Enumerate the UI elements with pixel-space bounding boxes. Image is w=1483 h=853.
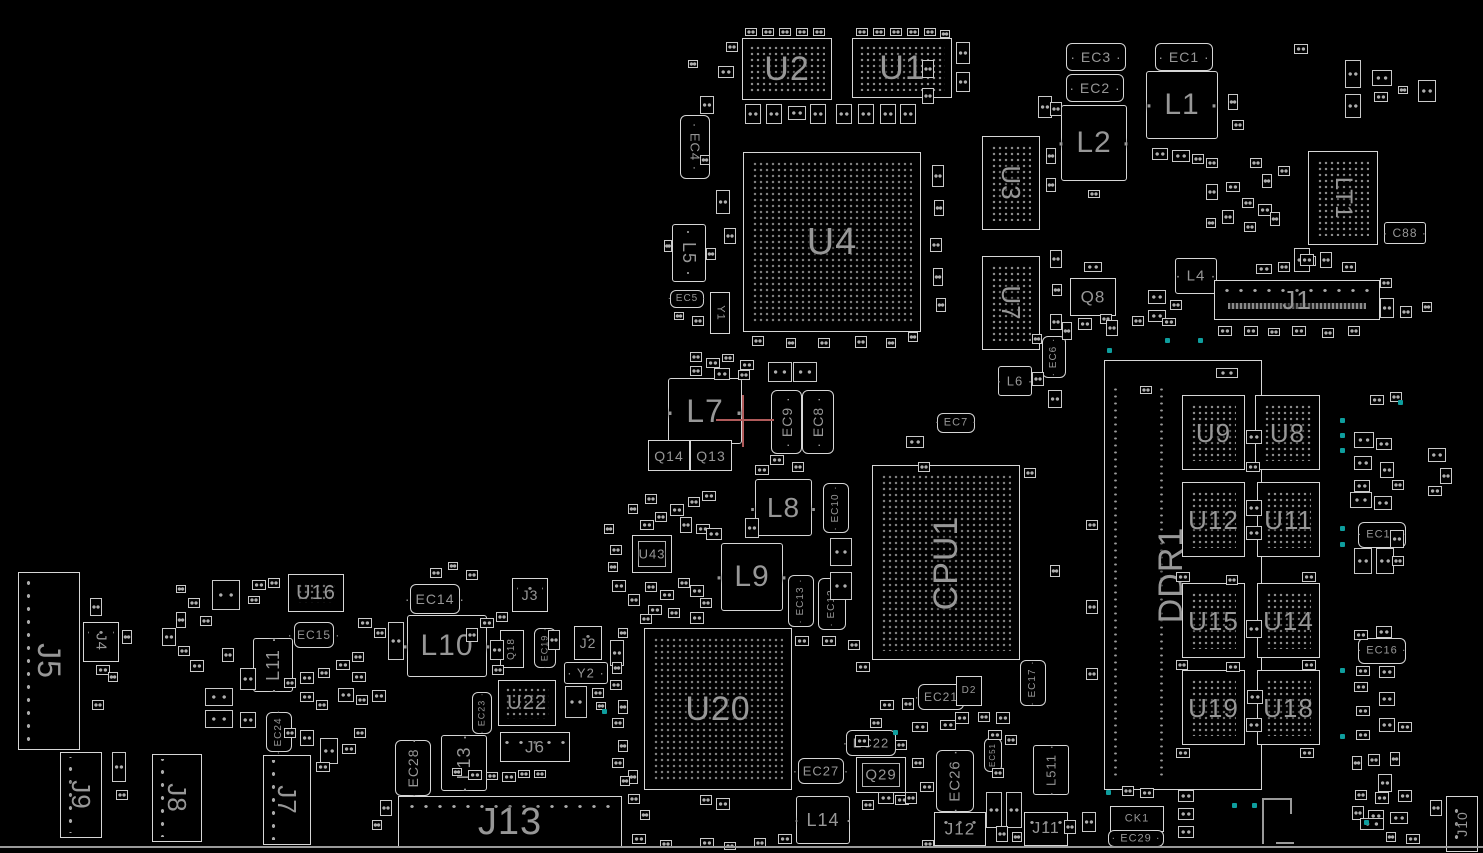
component-l13[interactable]: L13 <box>441 735 487 791</box>
component-c88[interactable]: C88 <box>1384 222 1426 244</box>
passive-part[interactable] <box>222 648 234 662</box>
passive-part[interactable] <box>380 800 392 816</box>
passive-part[interactable] <box>318 668 330 678</box>
passive-part[interactable] <box>830 538 852 566</box>
passive-part[interactable] <box>932 165 944 187</box>
passive-part[interactable] <box>284 678 296 688</box>
passive-part[interactable] <box>1376 438 1392 450</box>
passive-part[interactable] <box>924 28 936 36</box>
passive-part[interactable] <box>1390 530 1404 548</box>
passive-part[interactable] <box>768 362 792 382</box>
passive-part[interactable] <box>645 494 657 504</box>
component-j13[interactable]: J13 <box>398 796 622 848</box>
component-j10[interactable]: J10 <box>1446 796 1478 852</box>
passive-part[interactable] <box>905 792 917 804</box>
passive-part[interactable] <box>452 768 462 776</box>
passive-part[interactable] <box>1356 706 1370 716</box>
passive-part[interactable] <box>818 338 830 348</box>
passive-part[interactable] <box>486 772 498 780</box>
passive-part[interactable] <box>1052 284 1062 296</box>
component-u11[interactable]: U11 <box>1257 482 1320 557</box>
passive-part[interactable] <box>706 248 716 260</box>
passive-part[interactable] <box>1422 302 1432 312</box>
passive-part[interactable] <box>176 585 186 593</box>
passive-part[interactable] <box>1262 174 1272 188</box>
passive-part[interactable] <box>988 730 1002 740</box>
passive-part[interactable] <box>1368 754 1380 766</box>
passive-part[interactable] <box>1278 262 1290 272</box>
component-j3[interactable]: J3 <box>512 578 548 612</box>
passive-part[interactable] <box>1374 92 1388 102</box>
passive-part[interactable] <box>1106 320 1118 336</box>
passive-part[interactable] <box>755 465 769 475</box>
passive-part[interactable] <box>1294 44 1308 54</box>
passive-part[interactable] <box>1050 314 1062 330</box>
passive-part[interactable] <box>700 155 710 165</box>
passive-part[interactable] <box>1392 480 1404 490</box>
passive-part[interactable] <box>788 106 806 120</box>
passive-part[interactable] <box>592 688 604 698</box>
passive-part[interactable] <box>212 580 240 610</box>
passive-part[interactable] <box>604 524 614 534</box>
passive-part[interactable] <box>1354 456 1372 470</box>
passive-part[interactable] <box>986 792 1002 828</box>
component-ec28[interactable]: EC28 <box>395 740 431 796</box>
passive-part[interactable] <box>534 770 546 778</box>
passive-part[interactable] <box>668 608 680 618</box>
passive-part[interactable] <box>518 770 530 778</box>
component-u2[interactable]: U2 <box>742 38 832 100</box>
passive-part[interactable] <box>1024 468 1036 478</box>
component-ec16[interactable]: EC16 <box>1358 638 1406 664</box>
passive-part[interactable] <box>978 712 990 722</box>
component-lt1[interactable]: LT1 <box>1308 151 1378 245</box>
passive-part[interactable] <box>200 616 212 626</box>
passive-part[interactable] <box>745 28 757 36</box>
passive-part[interactable] <box>922 88 934 104</box>
passive-part[interactable] <box>1050 102 1062 116</box>
passive-part[interactable] <box>300 692 314 702</box>
passive-part[interactable] <box>162 628 176 646</box>
passive-part[interactable] <box>1226 662 1240 672</box>
passive-part[interactable] <box>726 42 738 52</box>
component-u20[interactable]: U20 <box>644 628 792 790</box>
component-j11[interactable]: J11 <box>1024 812 1068 846</box>
component-u19[interactable]: U19 <box>1182 670 1245 745</box>
passive-part[interactable] <box>1176 748 1190 758</box>
component-u8[interactable]: U8 <box>1255 395 1320 470</box>
passive-part[interactable] <box>766 104 782 124</box>
passive-part[interactable] <box>1050 250 1062 268</box>
passive-part[interactable] <box>856 662 870 672</box>
passive-part[interactable] <box>284 728 296 738</box>
passive-part[interactable] <box>1380 462 1394 478</box>
passive-part[interactable] <box>112 752 126 782</box>
component-l8[interactable]: L8 <box>755 479 812 536</box>
passive-part[interactable] <box>190 660 204 672</box>
passive-part[interactable] <box>342 744 356 754</box>
passive-part[interactable] <box>1244 222 1256 232</box>
passive-part[interactable] <box>1178 826 1194 838</box>
passive-part[interactable] <box>922 60 934 78</box>
passive-part[interactable] <box>1172 150 1190 162</box>
component-ec17[interactable]: EC17 <box>1020 660 1046 706</box>
passive-part[interactable] <box>813 28 825 36</box>
passive-part[interactable] <box>678 578 690 588</box>
passive-part[interactable] <box>1132 316 1144 326</box>
passive-part[interactable] <box>1356 666 1370 676</box>
passive-part[interactable] <box>1342 262 1356 272</box>
passive-part[interactable] <box>1370 395 1384 405</box>
component-ec4[interactable]: EC4 <box>680 115 710 179</box>
component-ec6[interactable]: EC6 <box>1042 336 1066 378</box>
passive-part[interactable] <box>956 42 970 64</box>
passive-part[interactable] <box>352 672 366 682</box>
passive-part[interactable] <box>1440 468 1452 484</box>
component-j5[interactable]: J5 <box>18 572 80 750</box>
passive-part[interactable] <box>745 104 761 124</box>
passive-part[interactable] <box>1244 326 1258 336</box>
passive-part[interactable] <box>610 545 622 555</box>
passive-part[interactable] <box>1355 790 1367 800</box>
passive-part[interactable] <box>930 238 942 252</box>
passive-part[interactable] <box>836 104 852 124</box>
passive-part[interactable] <box>468 770 482 780</box>
passive-part[interactable] <box>1006 792 1022 828</box>
component-l2[interactable]: L2 <box>1061 105 1127 181</box>
passive-part[interactable] <box>880 700 894 710</box>
passive-part[interactable] <box>762 28 774 36</box>
component-j6[interactable]: J6 <box>500 732 570 762</box>
passive-part[interactable] <box>786 338 796 348</box>
component-l10[interactable]: L10 <box>407 615 487 677</box>
component-l6[interactable]: L6 <box>998 366 1032 396</box>
component-u4[interactable]: U4 <box>743 152 921 332</box>
passive-part[interactable] <box>618 628 628 638</box>
component-l5[interactable]: L5 <box>672 224 706 282</box>
passive-part[interactable] <box>338 688 354 702</box>
passive-part[interactable] <box>1206 158 1218 168</box>
component-ec2[interactable]: EC2 <box>1066 74 1124 102</box>
passive-part[interactable] <box>1379 666 1395 678</box>
passive-part[interactable] <box>690 366 702 376</box>
passive-part[interactable] <box>745 518 759 538</box>
component-j9[interactable]: J9 <box>60 752 102 838</box>
passive-part[interactable] <box>612 718 624 728</box>
passive-part[interactable] <box>122 630 132 644</box>
passive-part[interactable] <box>628 594 640 606</box>
passive-part[interactable] <box>316 762 330 772</box>
passive-part[interactable] <box>1170 300 1182 310</box>
passive-part[interactable] <box>354 728 366 738</box>
passive-part[interactable] <box>1012 832 1022 842</box>
component-q8[interactable]: Q8 <box>1070 278 1116 316</box>
component-ec5[interactable]: EC5 <box>670 290 704 308</box>
passive-part[interactable] <box>1082 812 1096 832</box>
passive-part[interactable] <box>692 316 704 326</box>
component-l511[interactable]: L511 <box>1033 745 1069 795</box>
passive-part[interactable] <box>205 710 233 728</box>
passive-part[interactable] <box>706 358 720 368</box>
passive-part[interactable] <box>1390 812 1408 824</box>
component-ec22[interactable]: EC22 <box>846 730 896 756</box>
passive-part[interactable] <box>752 336 764 346</box>
passive-part[interactable] <box>1226 575 1238 585</box>
component-l14[interactable]: L14 <box>796 796 850 844</box>
passive-part[interactable] <box>1032 372 1044 386</box>
passive-part[interactable] <box>890 28 902 36</box>
passive-part[interactable] <box>1300 254 1314 266</box>
passive-part[interactable] <box>1430 800 1442 816</box>
passive-part[interactable] <box>955 712 969 724</box>
passive-part[interactable] <box>336 660 350 670</box>
component-u16[interactable]: U16 <box>288 574 344 612</box>
passive-part[interactable] <box>268 578 280 588</box>
passive-part[interactable] <box>1354 480 1370 492</box>
component-d2[interactable]: D2 <box>956 676 982 706</box>
passive-part[interactable] <box>1232 120 1244 130</box>
passive-part[interactable] <box>1302 572 1316 582</box>
passive-part[interactable] <box>1345 94 1361 118</box>
passive-part[interactable] <box>674 312 684 320</box>
passive-part[interactable] <box>996 826 1008 842</box>
passive-part[interactable] <box>1062 322 1072 340</box>
passive-part[interactable] <box>1178 790 1194 802</box>
passive-part[interactable] <box>640 810 650 820</box>
component-u15[interactable]: U15 <box>1182 583 1245 658</box>
component-y1[interactable]: Y1 <box>710 292 730 334</box>
passive-part[interactable] <box>1390 752 1400 766</box>
passive-part[interactable] <box>738 370 750 380</box>
passive-part[interactable] <box>1386 832 1396 842</box>
component-u18[interactable]: U18 <box>1257 670 1320 745</box>
passive-part[interactable] <box>855 336 867 348</box>
component-ec26[interactable]: EC26 <box>936 750 974 812</box>
passive-part[interactable] <box>490 640 504 660</box>
passive-part[interactable] <box>90 598 102 616</box>
passive-part[interactable] <box>940 720 956 730</box>
passive-part[interactable] <box>1428 448 1446 462</box>
passive-part[interactable] <box>822 636 836 646</box>
passive-part[interactable] <box>1380 298 1394 318</box>
passive-part[interactable] <box>1250 158 1262 168</box>
passive-part[interactable] <box>856 28 868 36</box>
passive-part[interactable] <box>918 462 930 472</box>
passive-part[interactable] <box>248 596 260 604</box>
passive-part[interactable] <box>1375 792 1389 804</box>
passive-part[interactable] <box>1392 556 1404 566</box>
component-u12[interactable]: U12 <box>1182 482 1245 557</box>
component-u43[interactable]: U43 <box>632 535 672 573</box>
passive-part[interactable] <box>862 800 874 810</box>
passive-part[interactable] <box>1302 660 1316 670</box>
component-ec13[interactable]: EC13 <box>788 575 814 627</box>
passive-part[interactable] <box>1354 432 1374 448</box>
passive-part[interactable] <box>1226 182 1240 192</box>
passive-part[interactable] <box>1354 630 1368 640</box>
passive-part[interactable] <box>178 646 190 656</box>
passive-part[interactable] <box>612 662 622 674</box>
passive-part[interactable] <box>1379 718 1395 732</box>
passive-part[interactable] <box>680 517 692 533</box>
passive-part[interactable] <box>902 698 914 710</box>
passive-part[interactable] <box>740 360 754 370</box>
passive-part[interactable] <box>1379 692 1395 706</box>
passive-part[interactable] <box>724 228 736 244</box>
passive-part[interactable] <box>1162 318 1176 326</box>
component-j1[interactable]: J1 <box>1214 280 1380 320</box>
passive-part[interactable] <box>300 730 314 746</box>
component-ec15[interactable]: EC15 <box>294 622 334 648</box>
passive-part[interactable] <box>880 104 896 124</box>
passive-part[interactable] <box>1352 756 1362 770</box>
passive-part[interactable] <box>618 700 628 714</box>
passive-part[interactable] <box>1148 290 1166 304</box>
passive-part[interactable] <box>645 582 657 592</box>
passive-part[interactable] <box>664 240 672 252</box>
component-ec7[interactable]: EC7 <box>937 413 975 433</box>
passive-part[interactable] <box>779 28 791 36</box>
passive-part[interactable] <box>1380 278 1392 288</box>
passive-part[interactable] <box>1064 820 1076 834</box>
component-ec29[interactable]: EC29 <box>1108 830 1164 847</box>
passive-part[interactable] <box>1242 198 1254 208</box>
passive-part[interactable] <box>1278 166 1290 176</box>
passive-part[interactable] <box>870 718 882 728</box>
passive-part[interactable] <box>670 504 684 516</box>
component-ec8[interactable]: EC8 <box>802 390 834 454</box>
passive-part[interactable] <box>1398 722 1412 732</box>
passive-part[interactable] <box>660 590 674 600</box>
passive-part[interactable] <box>352 652 364 662</box>
passive-part[interactable] <box>1176 660 1188 670</box>
passive-part[interactable] <box>320 738 338 764</box>
passive-part[interactable] <box>934 200 944 216</box>
passive-part[interactable] <box>1088 190 1100 198</box>
passive-part[interactable] <box>700 96 714 114</box>
passive-part[interactable] <box>908 332 918 342</box>
passive-part[interactable] <box>608 562 618 572</box>
passive-part[interactable] <box>1078 318 1092 330</box>
component-u22[interactable]: U22 <box>498 680 556 726</box>
passive-part[interactable] <box>316 700 328 710</box>
passive-part[interactable] <box>388 622 404 660</box>
passive-part[interactable] <box>912 758 924 768</box>
component-l7[interactable]: L7 <box>668 378 742 444</box>
component-ec51[interactable]: EC51 <box>984 738 1002 772</box>
component-j7[interactable]: J7 <box>263 755 311 845</box>
passive-part[interactable] <box>466 628 478 642</box>
passive-part[interactable] <box>700 598 712 608</box>
passive-part[interactable] <box>900 104 916 124</box>
passive-part[interactable] <box>430 568 442 578</box>
component-ec27[interactable]: EC27 <box>798 758 844 784</box>
passive-part[interactable] <box>1398 790 1412 802</box>
passive-part[interactable] <box>1086 600 1098 614</box>
passive-part[interactable] <box>358 618 372 628</box>
passive-part[interactable] <box>690 352 702 362</box>
passive-part[interactable] <box>1086 668 1098 680</box>
passive-part[interactable] <box>690 585 704 597</box>
passive-part[interactable] <box>688 497 700 507</box>
passive-part[interactable] <box>936 298 946 312</box>
passive-part[interactable] <box>620 776 630 786</box>
passive-part[interactable] <box>1320 252 1332 268</box>
passive-part[interactable] <box>628 794 640 804</box>
passive-part[interactable] <box>1176 572 1190 582</box>
component-j8[interactable]: J8 <box>152 754 202 842</box>
passive-part[interactable] <box>1270 212 1280 226</box>
passive-part[interactable] <box>1374 496 1392 510</box>
passive-part[interactable] <box>252 580 266 590</box>
passive-part[interactable] <box>502 772 516 782</box>
passive-part[interactable] <box>1400 306 1412 318</box>
passive-part[interactable] <box>716 798 730 810</box>
passive-part[interactable] <box>1322 328 1334 338</box>
passive-part[interactable] <box>830 572 852 600</box>
passive-part[interactable] <box>496 612 508 622</box>
passive-part[interactable] <box>1418 80 1436 102</box>
component-l9[interactable]: L9 <box>721 543 783 611</box>
passive-part[interactable] <box>548 630 560 650</box>
component-ec14[interactable]: EC14 <box>410 584 460 614</box>
passive-part[interactable] <box>778 834 792 844</box>
passive-part[interactable] <box>1398 86 1408 94</box>
passive-part[interactable] <box>1228 94 1238 110</box>
passive-part[interactable] <box>906 436 924 448</box>
passive-part[interactable] <box>618 740 628 752</box>
passive-part[interactable] <box>1046 178 1056 192</box>
passive-part[interactable] <box>1345 60 1361 88</box>
component-y2[interactable]: Y2 <box>564 662 608 684</box>
passive-part[interactable] <box>1192 154 1204 164</box>
passive-part[interactable] <box>1246 462 1260 472</box>
passive-part[interactable] <box>176 612 186 628</box>
passive-part[interactable] <box>1256 264 1272 274</box>
passive-part[interactable] <box>688 60 698 68</box>
passive-part[interactable] <box>1246 430 1262 444</box>
passive-part[interactable] <box>795 636 809 646</box>
passive-part[interactable] <box>372 690 386 702</box>
passive-part[interactable] <box>907 28 919 36</box>
component-ec23[interactable]: EC23 <box>472 692 492 734</box>
component-ec1[interactable]: EC1 <box>1155 43 1213 71</box>
component-ec9[interactable]: EC9 <box>771 390 802 454</box>
passive-part[interactable] <box>1084 262 1102 272</box>
passive-part[interactable] <box>1348 326 1360 336</box>
passive-part[interactable] <box>1206 184 1218 200</box>
passive-part[interactable] <box>1048 390 1062 408</box>
passive-part[interactable] <box>480 618 494 628</box>
component-q29[interactable]: Q29 <box>856 757 906 793</box>
passive-part[interactable] <box>1140 788 1154 798</box>
component-q14[interactable]: Q14 <box>648 440 690 471</box>
passive-part[interactable] <box>1246 620 1262 638</box>
passive-part[interactable] <box>188 598 200 608</box>
passive-part[interactable] <box>1140 386 1152 394</box>
passive-part[interactable] <box>205 688 233 706</box>
passive-part[interactable] <box>992 768 1004 778</box>
component-u9[interactable]: U9 <box>1182 395 1245 470</box>
passive-part[interactable] <box>1218 326 1232 336</box>
passive-part[interactable] <box>1178 808 1194 820</box>
passive-part[interactable] <box>700 795 712 805</box>
passive-part[interactable] <box>108 672 118 682</box>
passive-part[interactable] <box>1406 834 1420 844</box>
component-j2[interactable]: J2 <box>574 626 602 660</box>
passive-part[interactable] <box>1046 148 1056 164</box>
passive-part[interactable] <box>640 614 652 624</box>
